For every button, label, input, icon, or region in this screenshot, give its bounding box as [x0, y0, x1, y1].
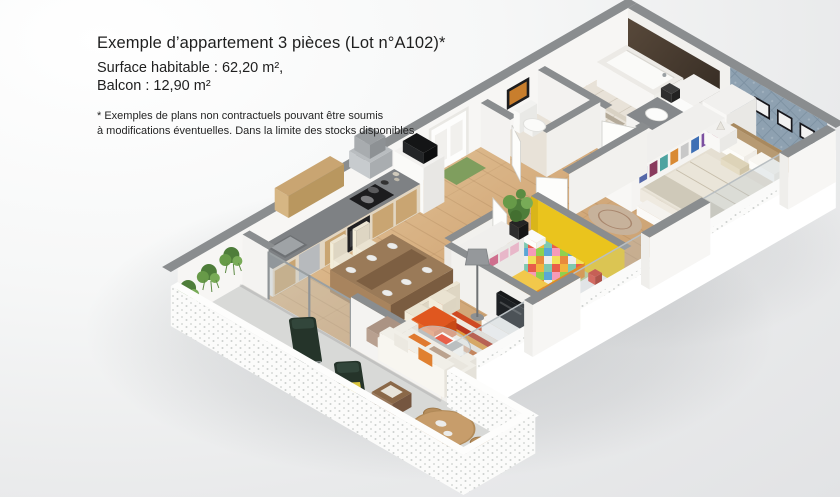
lamp-shade	[465, 249, 489, 265]
footnote-line-1: * Exemples de plans non contractuels pou…	[97, 109, 446, 124]
footnote: * Exemples de plans non contractuels pou…	[97, 109, 446, 138]
caption-block: Exemple d’appartement 3 pièces (Lot n°A1…	[97, 34, 446, 138]
page-title: Exemple d’appartement 3 pièces (Lot n°A1…	[97, 34, 446, 53]
plant-foliage	[510, 210, 522, 222]
hanging-plant	[197, 271, 209, 283]
plant-foliage	[521, 197, 533, 209]
toilet-tank	[514, 110, 520, 134]
floorplan-page: Exemple d’appartement 3 pièces (Lot n°A1…	[0, 0, 840, 497]
se-wall-pillar	[641, 233, 650, 290]
chair-back	[353, 229, 357, 257]
plant-foliage	[503, 195, 517, 209]
balcony-line: Balcon : 12,90 m²	[97, 77, 446, 95]
chair-back	[330, 242, 334, 270]
plant-foliage	[516, 189, 526, 199]
footnote-line-2: à modifications éventuelles. Dans la lim…	[97, 124, 446, 139]
se-wall-pillar	[524, 300, 533, 357]
se-wall-pillar	[780, 153, 789, 210]
hanging-plant	[219, 254, 231, 266]
surface-line: Surface habitable : 62,20 m²,	[97, 59, 446, 77]
bath-faucet	[662, 73, 666, 77]
